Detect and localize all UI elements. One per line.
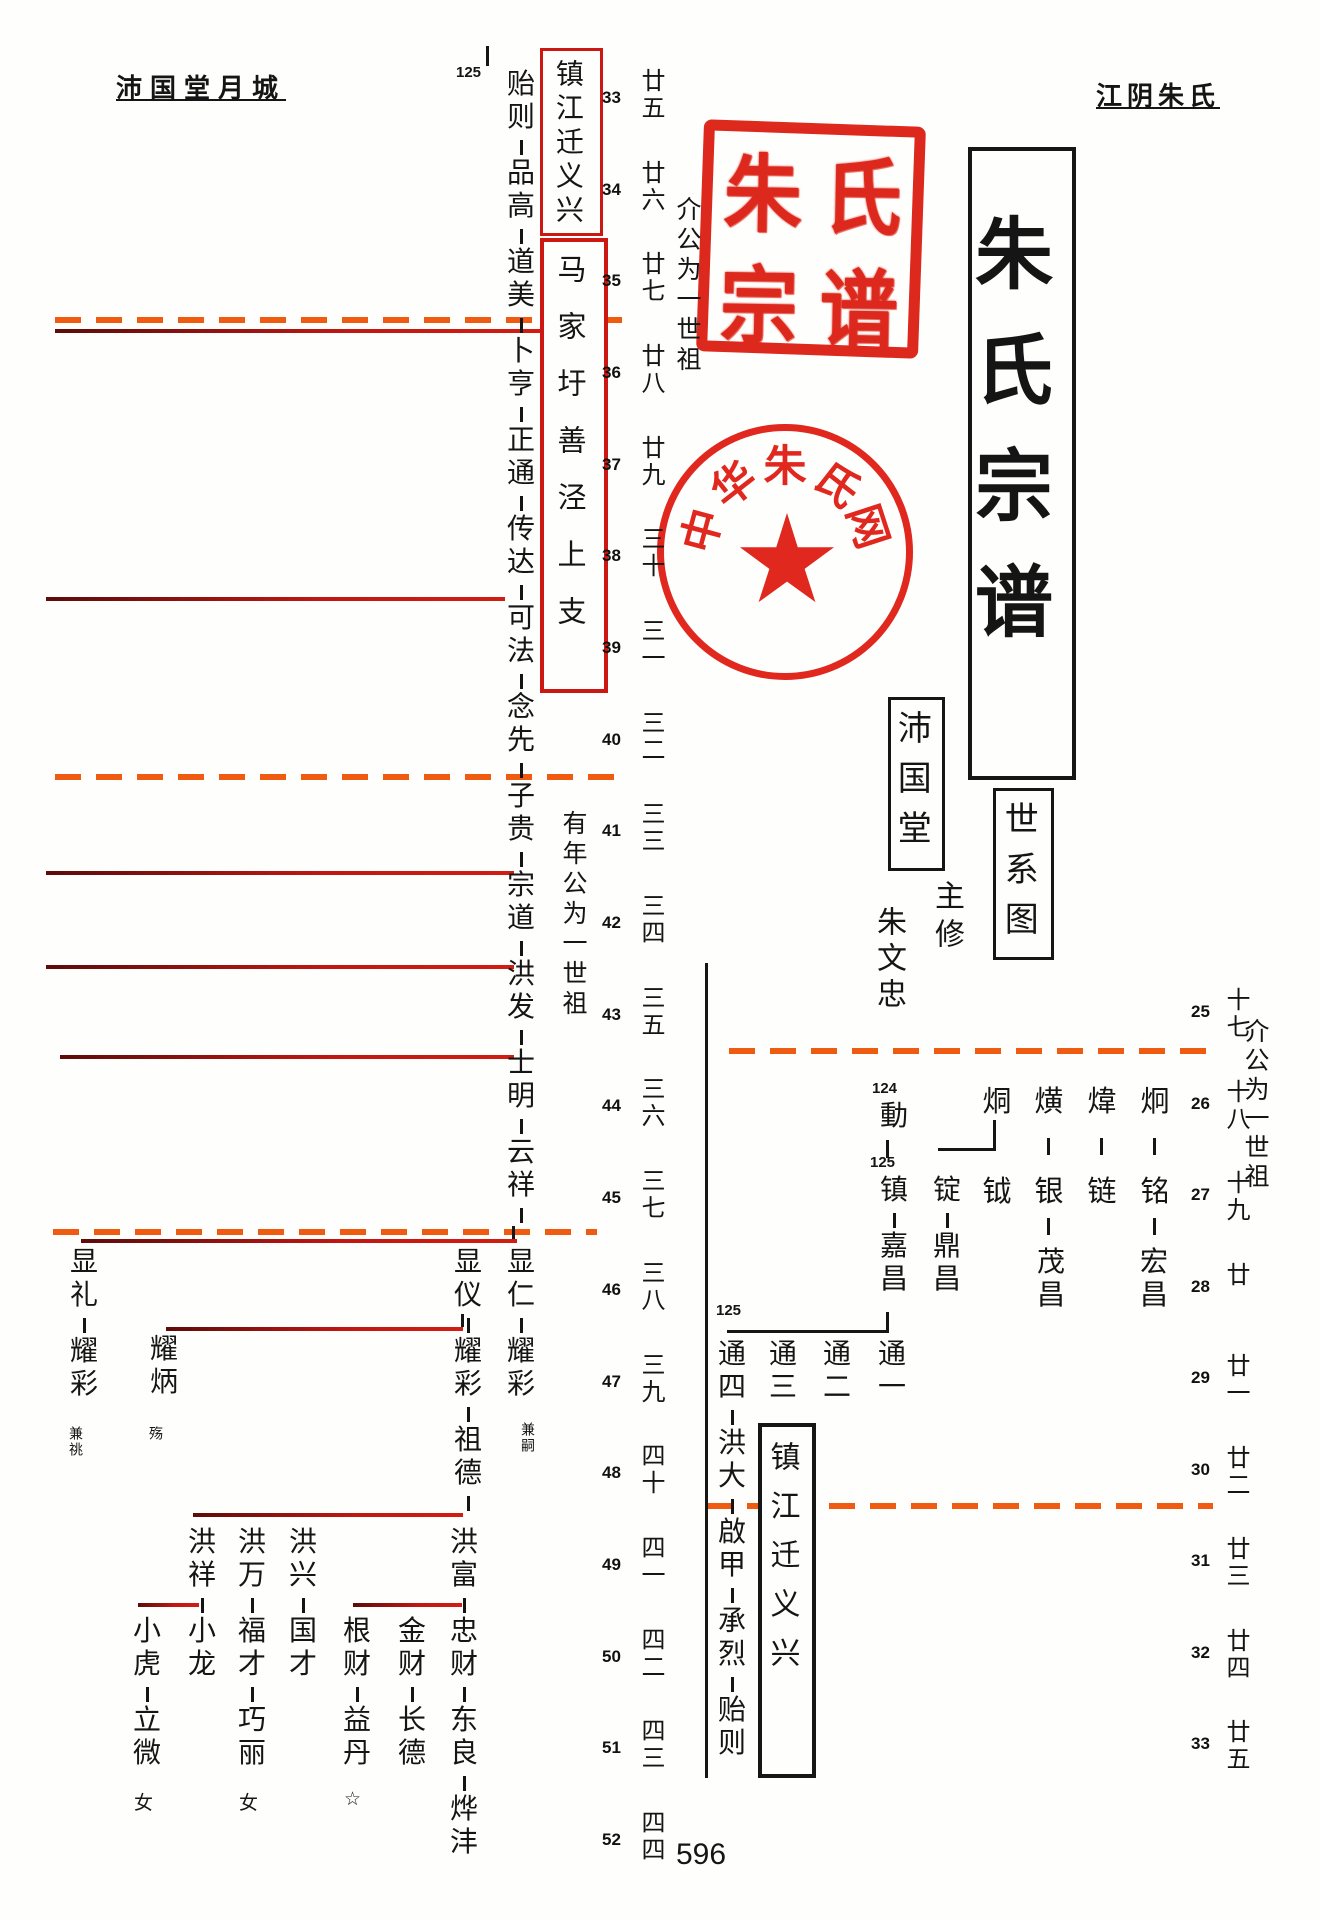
lineage-chain-main: 贻则品高道美卜亨正通传达可法念先子贵宗道洪发士明云祥	[503, 70, 539, 1227]
generation-number: 30	[1191, 1460, 1210, 1480]
person-char: 传	[507, 515, 535, 545]
person-jiong: 炯	[1137, 1086, 1173, 1118]
person-char: 一	[878, 1373, 906, 1403]
person-char: 根	[343, 1617, 371, 1647]
generation-number: 38	[602, 546, 621, 566]
red-branch-yao	[166, 1327, 463, 1331]
chart-label-box: 世系图	[993, 788, 1054, 960]
person-char: 道	[507, 904, 535, 934]
person-char: 虎	[133, 1650, 161, 1680]
person-char: 高	[507, 192, 535, 222]
person-char: 甲	[718, 1551, 746, 1581]
person-char: 品	[507, 159, 535, 189]
person-char: 仪	[454, 1281, 482, 1311]
generation-number: 39	[602, 638, 621, 658]
ref-125-top: 125	[456, 64, 481, 81]
person-char: 立	[133, 1706, 161, 1736]
person-tong-fire: 烔	[979, 1086, 1015, 1118]
connector-tick	[946, 1213, 949, 1228]
generation-numeral: 廿七	[633, 251, 668, 305]
person-char: 巧	[238, 1706, 266, 1736]
connector-tick	[467, 1407, 470, 1422]
person-char: 烨	[450, 1795, 478, 1825]
person-char: 金	[398, 1617, 426, 1647]
lineage-chain-xianli: 显礼耀彩	[66, 1248, 102, 1403]
connector-tick	[731, 1499, 734, 1514]
generation-number: 33	[1191, 1734, 1210, 1754]
person-char: 耀	[150, 1335, 178, 1365]
red-branch-hong	[193, 1513, 463, 1517]
editor-title: 主修	[924, 880, 968, 956]
person-char: 子	[507, 782, 535, 812]
person-char: 显	[70, 1248, 98, 1278]
tick-huang	[1047, 1138, 1050, 1155]
lineage-chain-xianren: 显仁耀彩	[503, 1248, 539, 1403]
person-char: 通	[878, 1340, 906, 1370]
generation-numeral: 三六	[633, 1076, 668, 1130]
person-char: 三	[769, 1373, 797, 1403]
ref-125-mid: 125	[870, 1154, 895, 1171]
lineage-chain-xiaolong: 小龙	[184, 1617, 220, 1683]
connector-tick	[731, 1677, 734, 1692]
generation-number: 44	[602, 1096, 621, 1116]
generation-number: 25	[1191, 1002, 1210, 1022]
lineage-chain-dong: 動	[876, 1102, 912, 1135]
generation-numeral: 廿五	[1218, 1719, 1253, 1773]
person-char: 昌	[880, 1265, 908, 1295]
person-char: 小	[188, 1617, 216, 1647]
tick-tong-elbow	[993, 1120, 996, 1150]
lineage-chain-tong1: 通一	[874, 1340, 910, 1406]
note-jiansi: 兼嗣	[516, 1422, 536, 1454]
person-ming: 铭	[1137, 1176, 1173, 1208]
person-char: 洪	[238, 1528, 266, 1558]
generation-number: 52	[602, 1830, 621, 1850]
red-line-4	[46, 965, 514, 969]
person-char: 耀	[454, 1337, 482, 1367]
person-char: 则	[718, 1729, 746, 1759]
lineage-chain-hongfu: 洪富	[446, 1528, 482, 1617]
person-char: 国	[289, 1617, 317, 1647]
generation-numeral: 三八	[633, 1260, 668, 1314]
person-char: 通	[769, 1340, 797, 1370]
connector-tick	[520, 852, 523, 867]
generation-number: 31	[1191, 1551, 1210, 1571]
generation-number: 48	[602, 1463, 621, 1483]
connector-tick	[251, 1598, 254, 1613]
person-char: 二	[823, 1373, 851, 1403]
connector-tick	[893, 1213, 896, 1228]
lineage-chain-tong4: 通四洪大啟甲承烈贻则	[714, 1340, 750, 1762]
generation-number: 33	[602, 88, 621, 108]
connector-tick	[731, 1410, 734, 1425]
person-char: 大	[718, 1462, 746, 1492]
person-char: 昌	[1037, 1281, 1065, 1311]
ancestor-note-mid: 有年公为一世祖	[554, 810, 590, 1020]
connector-tick	[520, 140, 523, 155]
person-char: 洪	[188, 1528, 216, 1558]
person-char: 福	[238, 1617, 266, 1647]
connector-tick	[520, 674, 523, 689]
person-char: 啟	[718, 1518, 746, 1548]
generation-numeral: 十九	[1218, 1170, 1253, 1224]
lineage-chain-hongxiang: 洪祥	[184, 1528, 220, 1617]
person-char: 德	[398, 1739, 426, 1769]
generation-numeral: 廿二	[1218, 1445, 1253, 1499]
generation-number: 49	[602, 1555, 621, 1575]
person-wei: 煒	[1084, 1086, 1120, 1118]
person-char: 美	[507, 281, 535, 311]
connector-tick	[731, 1588, 734, 1603]
generation-numeral: 十七	[1218, 987, 1253, 1041]
generation-numeral: 三二	[633, 710, 668, 764]
connector-tick	[467, 1496, 470, 1511]
person-char: 通	[718, 1340, 746, 1370]
lineage-chain-hongchang: 宏昌	[1136, 1248, 1172, 1314]
person-char: 烈	[718, 1640, 746, 1670]
generation-number: 34	[602, 180, 621, 200]
person-char: 彩	[454, 1370, 482, 1400]
generation-numeral: 四十	[633, 1443, 668, 1497]
generation-number: 35	[602, 271, 621, 291]
connector-tick	[83, 1318, 86, 1333]
person-char: 万	[238, 1561, 266, 1591]
person-char: 道	[507, 248, 535, 278]
person-char: 耀	[507, 1337, 535, 1367]
generation-numeral: 廿一	[1218, 1353, 1253, 1407]
generation-numeral: 四一	[633, 1535, 668, 1589]
seal-glyph: 朱	[723, 127, 803, 249]
generation-number: 45	[602, 1188, 621, 1208]
lineage-chain-gencai: 根财益丹	[339, 1617, 375, 1772]
red-branch-xian	[81, 1239, 517, 1243]
generation-numeral: 廿四	[1218, 1628, 1253, 1682]
connector-tick	[520, 496, 523, 511]
generation-numeral: 三五	[633, 985, 668, 1039]
generation-numeral: 廿五	[633, 68, 668, 122]
person-char: 明	[507, 1082, 535, 1112]
dashed-line-right-gen25	[729, 1048, 1211, 1054]
square-seal: 朱 氏 宗 谱	[696, 119, 926, 359]
generation-numeral: 四二	[633, 1627, 668, 1681]
person-char: 镇	[880, 1176, 908, 1206]
person-char: 礼	[70, 1281, 98, 1311]
red-line-2	[46, 597, 505, 601]
tick-ming	[1153, 1218, 1156, 1235]
person-char: 显	[454, 1248, 482, 1278]
generation-number: 47	[602, 1372, 621, 1392]
generation-number: 40	[602, 730, 621, 750]
person-char: 宗	[507, 871, 535, 901]
lineage-chain-yaobing: 耀炳	[146, 1335, 182, 1401]
red-line-1	[55, 329, 541, 333]
person-char: 达	[507, 548, 535, 578]
person-yue: 钺	[979, 1176, 1015, 1208]
red-line-3	[46, 871, 514, 875]
title-box: 朱氏宗谱	[968, 147, 1076, 780]
lineage-chain-tong3: 通三	[765, 1340, 801, 1406]
connector-tick	[463, 1687, 466, 1702]
connector-tick	[520, 1030, 523, 1045]
person-char: 宏	[1140, 1248, 1168, 1278]
generation-number: 29	[1191, 1368, 1210, 1388]
book-title: 朱氏宗谱	[981, 213, 1063, 677]
person-char: 贵	[507, 815, 535, 845]
person-char: 士	[507, 1049, 535, 1079]
person-char: 法	[507, 637, 535, 667]
star-icon	[738, 513, 836, 611]
person-huang: 熿	[1031, 1086, 1067, 1118]
lineage-chain-tong2: 通二	[819, 1340, 855, 1406]
tick-jiachang	[886, 1312, 889, 1330]
person-char: 长	[398, 1706, 426, 1736]
person-char: 富	[450, 1561, 478, 1591]
generation-numeral: 廿九	[633, 435, 668, 489]
lineage-chain-xiaohu: 小虎立微	[129, 1617, 165, 1772]
generation-number: 50	[602, 1647, 621, 1667]
note-jiantiao: 兼祧	[64, 1426, 84, 1458]
person-char: 卜	[507, 337, 535, 367]
note-shang: 殇	[144, 1426, 164, 1442]
hall-box: 沛国堂	[888, 697, 945, 871]
person-char: 益	[343, 1706, 371, 1736]
seal-glyph: 氏	[823, 131, 903, 253]
generation-number: 42	[602, 913, 621, 933]
person-char: 嘉	[880, 1232, 908, 1262]
person-char: 通	[507, 459, 535, 489]
connector-tick	[356, 1687, 359, 1702]
generation-numeral: 十八	[1218, 1079, 1253, 1133]
person-char: 洪	[450, 1528, 478, 1558]
person-char: 财	[450, 1650, 478, 1680]
generation-number: 36	[602, 363, 621, 383]
person-char: 显	[507, 1248, 535, 1278]
person-char: 祥	[188, 1561, 216, 1591]
connector-tick	[467, 1318, 470, 1333]
ref-125-low: 125	[716, 1302, 741, 1319]
generation-number: 27	[1191, 1185, 1210, 1205]
person-char: 昌	[933, 1265, 961, 1295]
person-char: 才	[238, 1650, 266, 1680]
tick-yin	[1047, 1218, 1050, 1235]
person-char: 可	[507, 604, 535, 634]
editor-name: 朱文忠	[866, 906, 910, 1014]
header-hall-left: 沛国堂月城	[116, 68, 286, 105]
person-char: 则	[507, 103, 535, 133]
branch-box-zhenjiang-top: 镇江迁义兴	[540, 48, 603, 236]
generation-number: 26	[1191, 1094, 1210, 1114]
connector-tick	[520, 763, 523, 778]
branch-box-zhenjiang-bottom: 镇江迁义兴	[758, 1423, 816, 1778]
connector-tick	[146, 1687, 149, 1702]
tick-ref-top	[486, 46, 489, 66]
connector-tick	[302, 1598, 305, 1613]
generation-numeral: 廿八	[633, 343, 668, 397]
lineage-chain-zhen: 镇嘉昌	[876, 1176, 912, 1298]
person-yin: 银	[1031, 1176, 1067, 1208]
connector-tick	[520, 229, 523, 244]
generation-number: 28	[1191, 1277, 1210, 1297]
person-char: 念	[507, 693, 535, 723]
person-char: 丽	[238, 1739, 266, 1769]
connector-tick	[520, 1208, 523, 1223]
person-char: 德	[454, 1459, 482, 1489]
person-char: 微	[133, 1739, 161, 1769]
lineage-chain-hongwan: 洪万福才巧丽	[234, 1528, 270, 1772]
person-char: 洪	[289, 1528, 317, 1558]
generation-numeral: 廿三	[1218, 1536, 1253, 1590]
tick-jiong	[1153, 1138, 1156, 1155]
connector-tick	[520, 941, 523, 956]
person-char: 锭	[933, 1176, 961, 1206]
generation-numeral: 三十	[633, 526, 668, 580]
generation-numeral: 廿	[1218, 1262, 1253, 1289]
person-char: 動	[880, 1102, 908, 1132]
person-char: 财	[343, 1650, 371, 1680]
generation-numeral: 三四	[633, 893, 668, 947]
lineage-chain-zhongcai: 忠财东良烨沣	[446, 1617, 482, 1861]
person-char: 发	[507, 993, 535, 1023]
connector-tick	[520, 585, 523, 600]
round-seal-zhu-clan-network: 中 华 朱 氏 网	[657, 424, 913, 680]
seal-glyph: 谱	[819, 243, 899, 365]
person-char: 承	[718, 1607, 746, 1637]
generation-numeral: 三九	[633, 1352, 668, 1406]
person-char: 沣	[450, 1828, 478, 1858]
person-char: 兴	[289, 1561, 317, 1591]
person-char: 通	[823, 1340, 851, 1370]
header-clan-right: 江阴朱氏	[1096, 76, 1220, 113]
branch-line-ding	[938, 1148, 996, 1151]
generation-number: 37	[602, 455, 621, 475]
generation-number: 43	[602, 1005, 621, 1025]
generation-number: 51	[602, 1738, 621, 1758]
person-char: 祖	[454, 1426, 482, 1456]
seal-glyph: 宗	[719, 239, 799, 361]
person-char: 贻	[718, 1696, 746, 1726]
connector-tick	[463, 1598, 466, 1613]
person-char: 鼎	[933, 1232, 961, 1262]
generation-number: 41	[602, 821, 621, 841]
connector-tick	[201, 1598, 204, 1613]
person-char: 炳	[150, 1368, 178, 1398]
person-char: 良	[450, 1739, 478, 1769]
connector-tick	[520, 407, 523, 422]
generation-number: 32	[1191, 1643, 1210, 1663]
generation-numeral: 三七	[633, 1168, 668, 1222]
lineage-chain-jincai: 金财长德	[394, 1617, 430, 1772]
person-char: 龙	[188, 1650, 216, 1680]
person-char: 东	[450, 1706, 478, 1736]
person-char: 四	[718, 1373, 746, 1403]
ancestor-note-top: 介公为一世祖	[668, 196, 704, 376]
genealogy-page: 沛国堂月城 江阴朱氏 596 镇江迁义兴 马家圩善泾上支 朱氏宗谱 世系图	[0, 0, 1320, 1920]
person-char: 先	[507, 726, 535, 756]
dashed-line-gen40	[55, 774, 629, 780]
person-char: 财	[398, 1650, 426, 1680]
lineage-chain-ding: 锭鼎昌	[929, 1176, 965, 1298]
connector-tick	[251, 1687, 254, 1702]
person-char: 洪	[718, 1429, 746, 1459]
section-divider-line	[705, 963, 708, 1778]
person-char: 丹	[343, 1739, 371, 1769]
person-char: 亨	[507, 370, 535, 400]
tick-wei	[1100, 1138, 1103, 1155]
person-char: 才	[289, 1650, 317, 1680]
seal-char: 朱	[761, 444, 809, 492]
female-mark-2: 女	[239, 1788, 258, 1815]
person-char: 正	[507, 426, 535, 456]
person-char: 耀	[70, 1337, 98, 1367]
person-char: 彩	[70, 1370, 98, 1400]
page-number: 596	[676, 1838, 726, 1872]
person-char: 小	[133, 1617, 161, 1647]
connector-tick	[520, 1318, 523, 1333]
red-line-5	[60, 1055, 514, 1059]
person-char: 昌	[1140, 1281, 1168, 1311]
lineage-chain-xianyi: 显仪耀彩祖德	[450, 1248, 486, 1515]
branch-box-majiayu: 马家圩善泾上支	[540, 238, 608, 693]
connector-tick	[463, 1776, 466, 1791]
person-char: 贻	[507, 70, 535, 100]
person-char: 祥	[507, 1171, 535, 1201]
lineage-chain-maochang: 茂昌	[1033, 1248, 1069, 1314]
connector-tick	[520, 318, 523, 333]
generation-numeral: 廿六	[633, 160, 668, 214]
person-char: 云	[507, 1138, 535, 1168]
person-char: 忠	[450, 1617, 478, 1647]
person-char: 洪	[507, 960, 535, 990]
person-char: 仁	[507, 1281, 535, 1311]
female-mark-1: 女	[134, 1788, 153, 1815]
generation-numeral: 三三	[633, 801, 668, 855]
generation-numeral: 三一	[633, 618, 668, 672]
star-mark: ☆	[344, 1788, 361, 1811]
generation-numeral: 四三	[633, 1718, 668, 1772]
tick-yunxiang	[512, 1226, 515, 1239]
connector-tick	[520, 1119, 523, 1134]
connector-tick	[411, 1687, 414, 1702]
ref-124: 124	[872, 1080, 897, 1097]
branch-line-tong	[727, 1330, 889, 1333]
person-char: 彩	[507, 1370, 535, 1400]
dashed-line-gen35	[55, 317, 540, 323]
generation-number: 46	[602, 1280, 621, 1300]
person-char: 茂	[1037, 1248, 1065, 1278]
lineage-chain-hongxing: 洪兴国才	[285, 1528, 321, 1683]
dashed-line-gen45	[53, 1229, 597, 1235]
person-lian: 链	[1084, 1176, 1120, 1208]
generation-numeral: 四四	[633, 1810, 668, 1864]
